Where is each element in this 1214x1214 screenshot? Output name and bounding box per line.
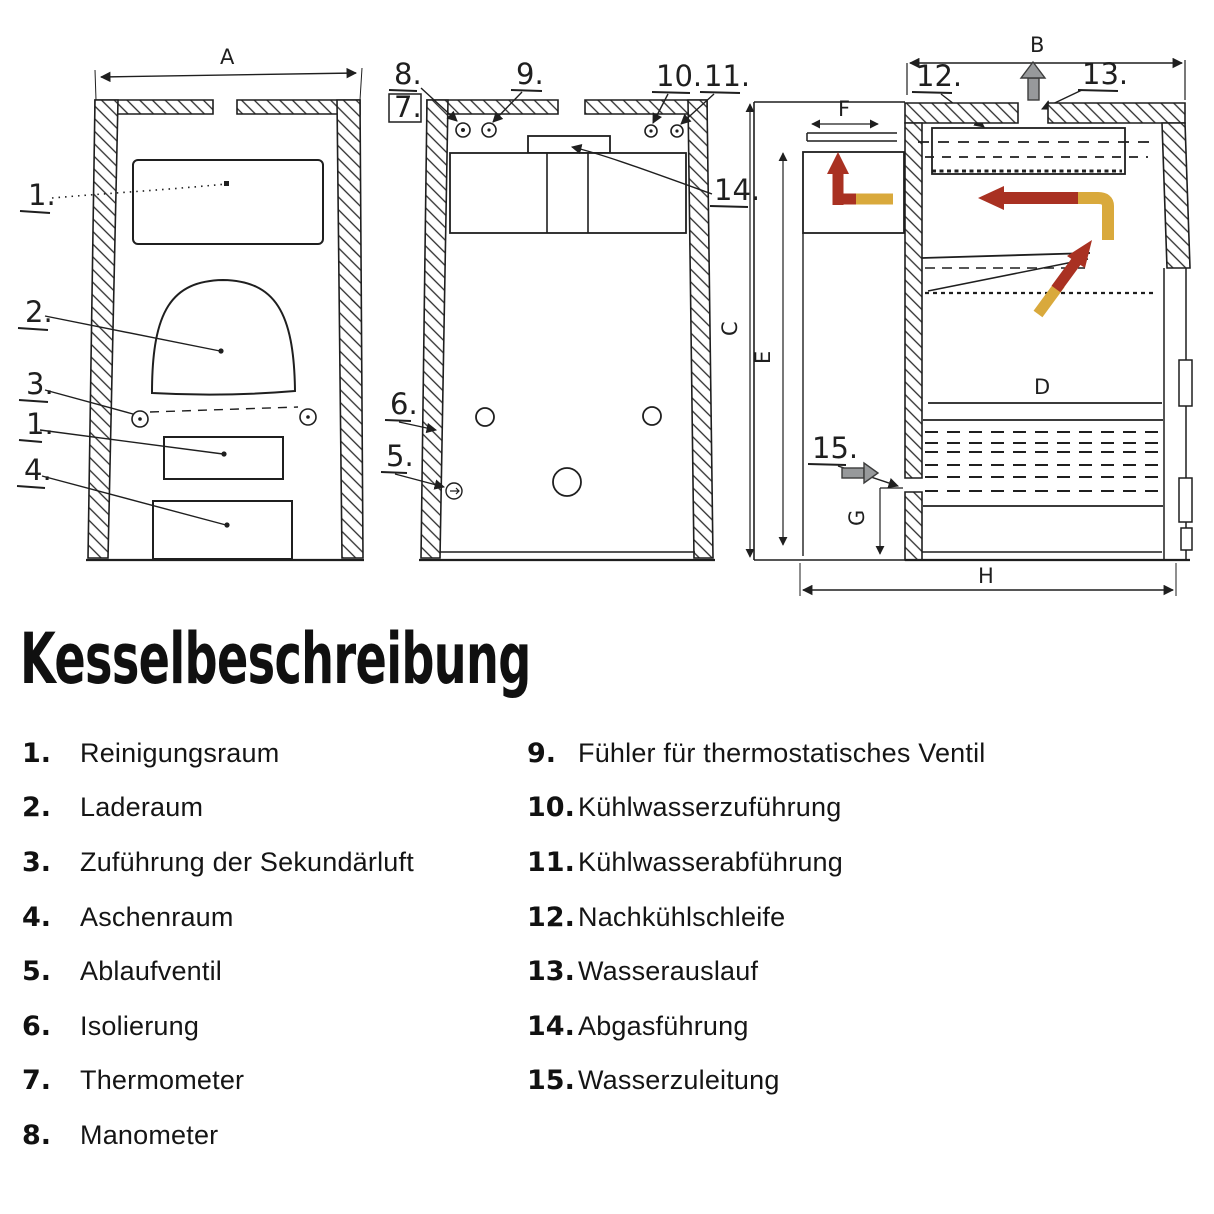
legend-label: Reinigungsraum: [80, 738, 279, 769]
boiler-drawings: A 1. 2. 3. 1. 4.: [0, 0, 1214, 612]
legend-number: 5.: [22, 956, 80, 987]
legend-label: Abgasführung: [578, 1011, 749, 1042]
legend-column-right: 9.Fühler für thermostatisches Ventil 10.…: [527, 726, 1187, 1108]
callout-7: 7.: [394, 90, 422, 124]
legend-label: Nachkühlschleife: [578, 902, 785, 933]
legend-label: Wasserauslauf: [578, 956, 758, 987]
ash-door: [153, 501, 292, 559]
legend-number: 8.: [22, 1120, 80, 1151]
legend-label: Fühler für thermostatisches Ventil: [578, 738, 985, 769]
callout-5: 5.: [386, 439, 414, 473]
dim-label-A: A: [220, 45, 235, 69]
flue-outlet: [528, 136, 610, 153]
legend-number: 13.: [527, 956, 578, 987]
legend-number: 1.: [22, 738, 80, 769]
legend-item: 1.Reinigungsraum: [22, 726, 522, 781]
callout-1b: 1.: [26, 407, 54, 441]
legend-label: Kühlwasserabführung: [578, 847, 843, 878]
front-view-drawing: A 1. 2. 3. 1. 4.: [17, 45, 364, 560]
legend-item: 6.Isolierung: [22, 999, 522, 1054]
legend-number: 9.: [527, 738, 578, 769]
callout-3: 3.: [26, 367, 54, 401]
rear-view-drawing: 8. 7. 9. 10. 11. 14. 6. 5.: [381, 57, 760, 560]
legend-number: 7.: [22, 1065, 80, 1096]
flue-gas-arrow-main: [978, 186, 1108, 240]
dim-label-B: B: [1030, 33, 1044, 57]
page-title: Kesselbeschreibung: [20, 618, 531, 700]
legend-number: 12.: [527, 902, 578, 933]
flue-gas-arrow-diagonal: [1038, 240, 1092, 314]
legend-label: Ablaufventil: [80, 956, 222, 987]
legend-item: 15.Wasserzuleitung: [527, 1054, 1187, 1109]
callout-4: 4.: [24, 453, 52, 487]
dim-line-A: [101, 73, 356, 77]
callout-2: 2.: [25, 295, 53, 329]
legend-item: 14.Abgasführung: [527, 999, 1187, 1054]
legend-item: 10.Kühlwasserzuführung: [527, 781, 1187, 836]
legend-label: Aschenraum: [80, 902, 234, 933]
dim-label-C: C: [718, 321, 742, 336]
callout-10: 10.: [656, 59, 702, 93]
after-cooling-loop: [932, 128, 1125, 174]
legend-item: 3.Zuführung der Sekundärluft: [22, 835, 522, 890]
legend-label: Wasserzuleitung: [578, 1065, 780, 1096]
callout-9: 9.: [516, 57, 544, 91]
legend-item: 8.Manometer: [22, 1108, 522, 1163]
legend-item: 13.Wasserauslauf: [527, 944, 1187, 999]
dim-label-D: D: [1034, 375, 1050, 399]
section-view-drawing: C E F B 12. 13.: [718, 33, 1192, 596]
legend-number: 10.: [527, 792, 578, 823]
callout-12: 12.: [916, 59, 962, 93]
legend-column-left: 1.Reinigungsraum 2.Laderaum 3.Zuführung …: [22, 726, 522, 1163]
legend-number: 6.: [22, 1011, 80, 1042]
heat-exchanger-rows: [925, 432, 1158, 491]
dim-label-H: H: [978, 564, 994, 588]
legend-label: Kühlwasserzuführung: [578, 792, 841, 823]
legend-number: 2.: [22, 792, 80, 823]
legend-number: 11.: [527, 847, 578, 878]
manual-page: A 1. 2. 3. 1. 4.: [0, 0, 1214, 1214]
water-outlet-arrow: [1021, 62, 1045, 100]
dim-label-G: G: [845, 510, 869, 526]
loading-door-arch: [152, 280, 295, 395]
callout-1: 1.: [28, 178, 56, 212]
legend-item: 11.Kühlwasserabführung: [527, 835, 1187, 890]
callout-13: 13.: [1082, 57, 1128, 91]
legend-number: 14.: [527, 1011, 578, 1042]
cleaning-door-lower: [164, 437, 283, 479]
legend-item: 4.Aschenraum: [22, 890, 522, 945]
legend-number: 15.: [527, 1065, 578, 1096]
cleaning-door: [133, 160, 323, 244]
legend-number: 3.: [22, 847, 80, 878]
callout-8: 8.: [394, 57, 422, 91]
legend-label: Manometer: [80, 1120, 218, 1151]
callout-15: 15.: [812, 431, 858, 465]
water-inlet-arrow: [842, 463, 878, 483]
legend-label: Laderaum: [80, 792, 203, 823]
dim-label-F: F: [838, 97, 850, 121]
legend-label: Zuführung der Sekundärluft: [80, 847, 414, 878]
legend-item: 2.Laderaum: [22, 781, 522, 836]
callout-6: 6.: [390, 387, 418, 421]
legend-label: Isolierung: [80, 1011, 199, 1042]
callout-11: 11.: [704, 59, 750, 93]
legend-item: 9.Fühler für thermostatisches Ventil: [527, 726, 1187, 781]
legend-number: 4.: [22, 902, 80, 933]
legend-item: 7.Thermometer: [22, 1054, 522, 1109]
legend-item: 5.Ablaufventil: [22, 944, 522, 999]
legend-item: 12.Nachkühlschleife: [527, 890, 1187, 945]
legend-label: Thermometer: [80, 1065, 244, 1096]
